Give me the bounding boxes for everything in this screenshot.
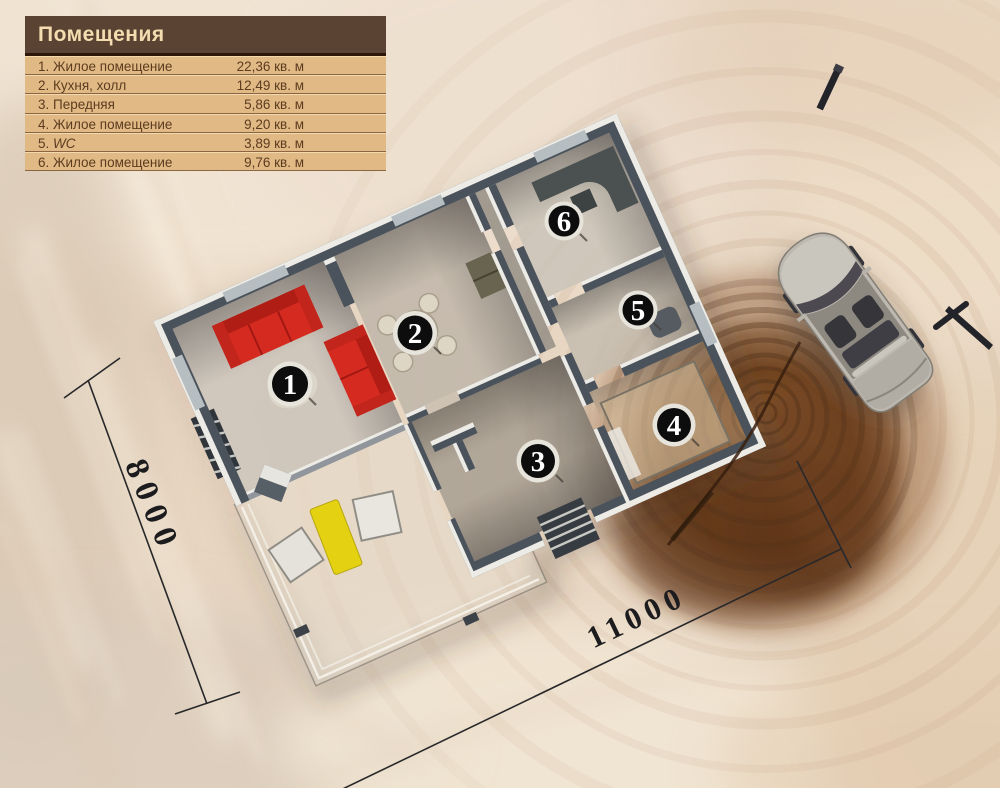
svg-text:5: 5 — [631, 295, 646, 327]
svg-text:4: 4 — [667, 410, 682, 442]
svg-text:3: 3 — [531, 446, 546, 478]
svg-text:1: 1 — [283, 369, 298, 401]
svg-text:6: 6 — [557, 206, 572, 238]
svg-text:2: 2 — [408, 318, 423, 350]
